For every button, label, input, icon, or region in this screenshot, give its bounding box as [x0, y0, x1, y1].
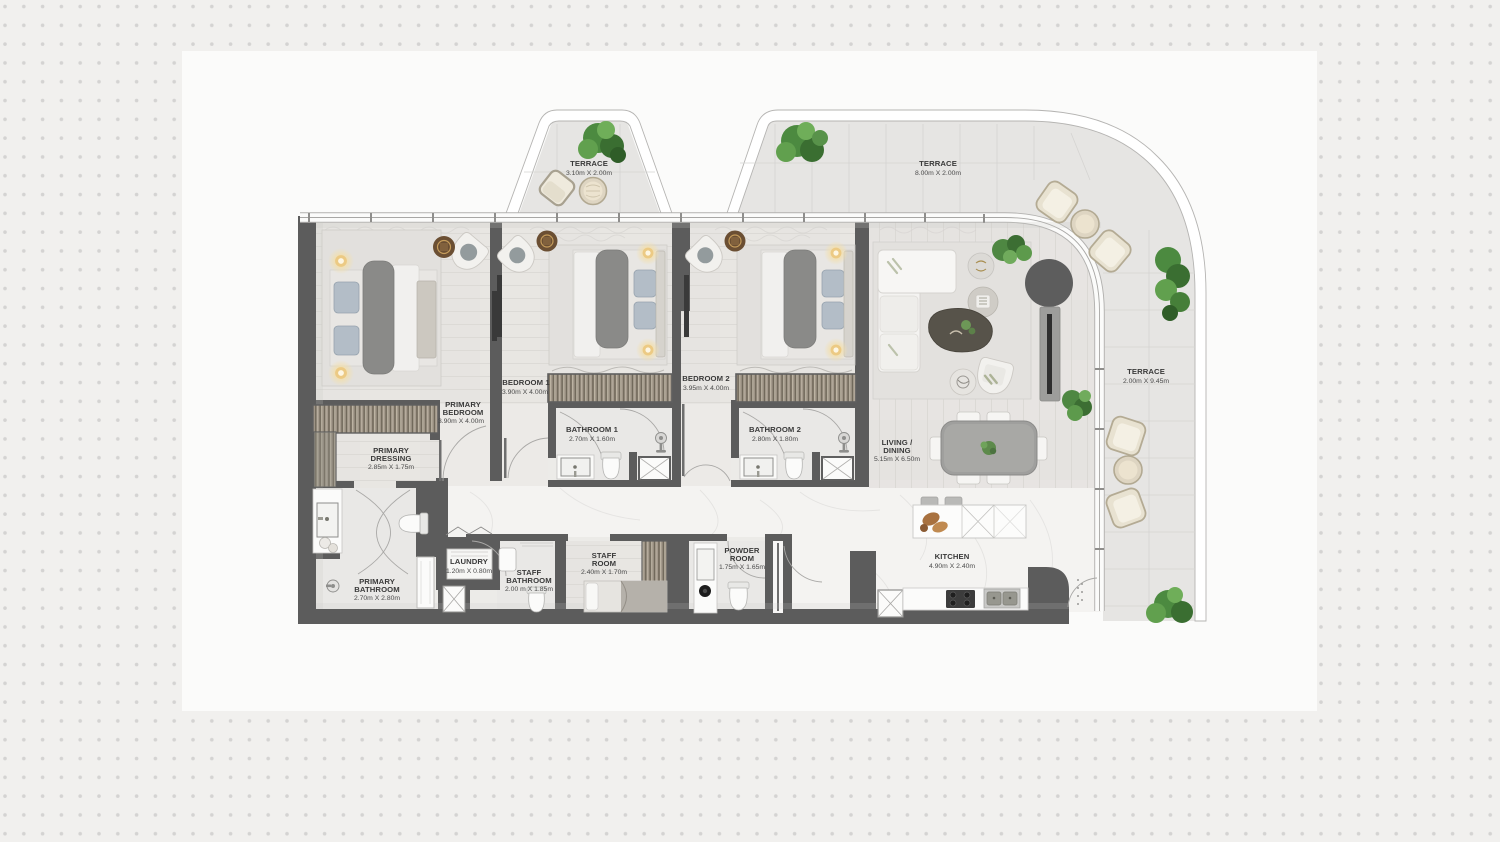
- svg-text:2.70m X 1.60m: 2.70m X 1.60m: [569, 436, 615, 443]
- svg-text:ROOM: ROOM: [730, 554, 754, 563]
- svg-text:2.70m X 2.80m: 2.70m X 2.80m: [354, 595, 400, 602]
- svg-text:1.75m X 1.65m: 1.75m X 1.65m: [719, 564, 765, 571]
- svg-text:BATHROOM: BATHROOM: [506, 576, 552, 585]
- svg-text:2.00 m X 1.85m: 2.00 m X 1.85m: [505, 586, 553, 593]
- svg-text:TERRACE: TERRACE: [1127, 367, 1165, 376]
- svg-text:2.80m X 1.80m: 2.80m X 1.80m: [752, 436, 798, 443]
- svg-text:8.00m X 2.00m: 8.00m X 2.00m: [915, 170, 961, 177]
- svg-text:BATHROOM 1: BATHROOM 1: [566, 425, 619, 434]
- svg-text:DINING: DINING: [883, 446, 911, 455]
- svg-text:2.00m X 9.45m: 2.00m X 9.45m: [1123, 378, 1169, 385]
- svg-text:BEDROOM 1: BEDROOM 1: [502, 378, 550, 387]
- svg-text:BEDROOM 2: BEDROOM 2: [682, 374, 729, 383]
- svg-text:BATHROOM 2: BATHROOM 2: [749, 425, 801, 434]
- svg-text:KITCHEN: KITCHEN: [935, 552, 970, 561]
- svg-text:1.20m X 0.80m: 1.20m X 0.80m: [446, 568, 492, 575]
- svg-text:2.40m X 1.70m: 2.40m X 1.70m: [581, 569, 627, 576]
- svg-text:BEDROOM: BEDROOM: [443, 408, 484, 417]
- svg-text:3.90m X 4.00m: 3.90m X 4.00m: [502, 389, 548, 396]
- svg-text:4.90m X 2.40m: 4.90m X 2.40m: [929, 563, 975, 570]
- svg-text:TERRACE: TERRACE: [919, 159, 957, 168]
- svg-text:LAUNDRY: LAUNDRY: [450, 557, 488, 566]
- svg-text:ROOM: ROOM: [592, 559, 616, 568]
- svg-text:2.85m X 1.75m: 2.85m X 1.75m: [368, 464, 414, 471]
- svg-text:3.95m X 4.00m: 3.95m X 4.00m: [683, 385, 729, 392]
- svg-text:TERRACE: TERRACE: [570, 159, 608, 168]
- svg-text:5.15m X 6.50m: 5.15m X 6.50m: [874, 456, 920, 463]
- svg-text:DRESSING: DRESSING: [371, 454, 412, 463]
- svg-text:3.90m X 4.00m: 3.90m X 4.00m: [438, 418, 484, 425]
- svg-text:3.10m X 2.00m: 3.10m X 2.00m: [566, 170, 612, 177]
- svg-text:BATHROOM: BATHROOM: [354, 585, 400, 594]
